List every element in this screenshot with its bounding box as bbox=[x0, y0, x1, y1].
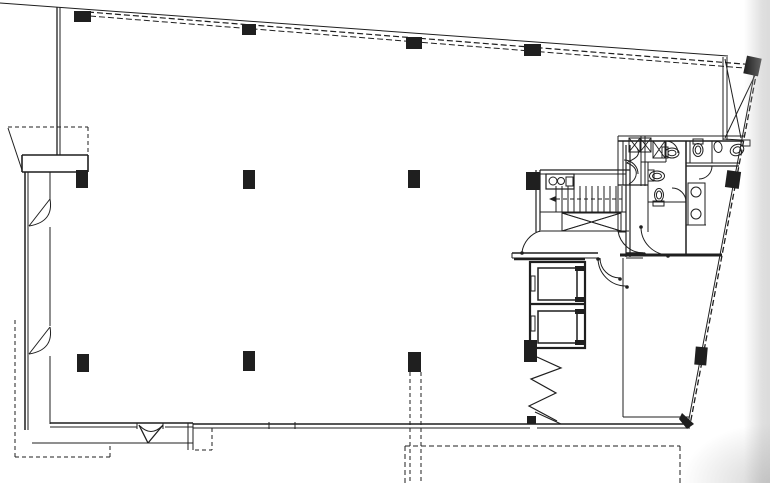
elevator-door-jamb bbox=[575, 309, 584, 314]
door-stop-dot bbox=[596, 257, 600, 261]
column-marker bbox=[76, 170, 88, 188]
door-stop-dot bbox=[618, 277, 622, 281]
floor-plan-canvas bbox=[0, 0, 770, 483]
elevator-door-jamb bbox=[575, 340, 584, 345]
column-marker bbox=[242, 24, 256, 35]
column-marker bbox=[527, 416, 536, 424]
column-marker bbox=[77, 354, 89, 372]
column-marker bbox=[408, 352, 421, 372]
elevator-door-jamb bbox=[575, 297, 584, 302]
floor-plan bbox=[0, 0, 770, 483]
paper-background bbox=[0, 0, 770, 483]
door-stop-dot bbox=[666, 254, 670, 258]
column-marker bbox=[408, 170, 420, 188]
door-stop-dot bbox=[625, 285, 629, 289]
column-marker bbox=[526, 172, 540, 190]
door-stop-dot bbox=[520, 251, 524, 255]
elevator-door-jamb bbox=[575, 266, 584, 271]
column-marker bbox=[694, 347, 708, 366]
column-marker bbox=[406, 37, 422, 49]
door-stop-dot bbox=[639, 225, 643, 229]
column-marker bbox=[243, 170, 255, 189]
column-marker bbox=[725, 170, 741, 189]
column-marker bbox=[524, 44, 541, 56]
column-marker bbox=[74, 11, 91, 22]
door-stop-dot bbox=[642, 252, 646, 256]
column-marker bbox=[243, 351, 255, 371]
